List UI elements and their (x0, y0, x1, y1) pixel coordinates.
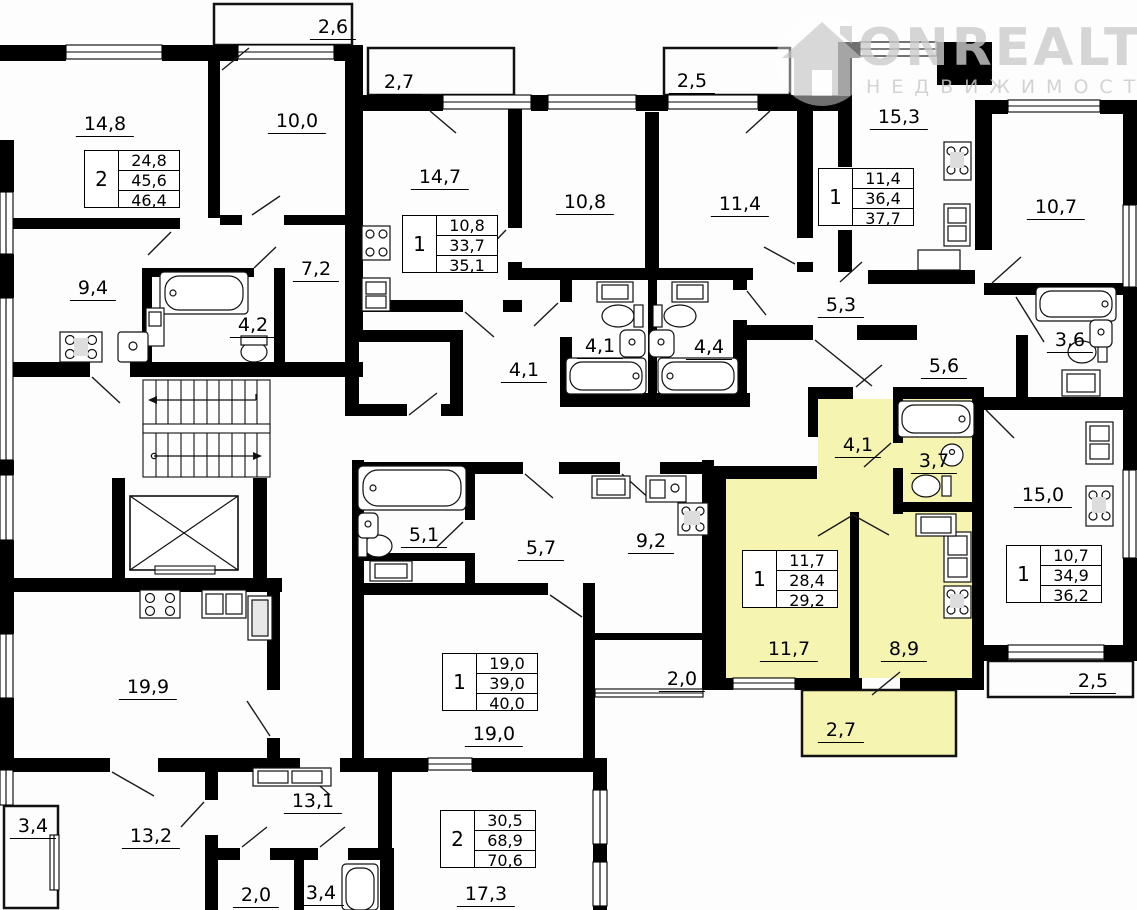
living-area: 19,0 (477, 654, 537, 673)
living-area: 24,8 (119, 151, 179, 170)
living-area: 10,7 (1041, 546, 1101, 565)
area-label-room-11-7: 11,7 (760, 639, 818, 662)
toilet-icon (241, 336, 267, 362)
cabinet-icon (918, 250, 960, 270)
area-label-balcony-2-5-top: 2,5 (669, 71, 715, 94)
apartment-rooms-count: 1 (819, 169, 853, 225)
total-area: 35,1 (437, 255, 497, 275)
wardrobe-icon (370, 561, 412, 581)
area-label-room-10-8: 10,8 (556, 192, 614, 215)
area-label-room-9-4: 9,4 (70, 278, 116, 301)
total-area: 46,4 (119, 190, 179, 210)
area-label-bath-3-7: 3,7 (911, 451, 957, 474)
area-label-balcony-2-7-top: 2,7 (376, 72, 422, 95)
area-label-loggia-2-0: 2,0 (659, 669, 705, 692)
living-area: 10,8 (437, 216, 497, 235)
stove-icon (678, 503, 708, 535)
area-label-room-15-3: 15,3 (870, 107, 928, 130)
area-label-kitchen-8-9: 8,9 (881, 639, 927, 662)
area-label-room-10-7: 10,7 (1027, 197, 1085, 220)
washing-machine-icon (916, 514, 956, 536)
area-label-loggia-3-4-left: 3,4 (10, 816, 56, 839)
stove-icon (362, 226, 390, 260)
area-label-hall-5-7: 5,7 (518, 538, 564, 561)
area-label-room-10-0: 10,0 (268, 111, 326, 134)
stove-icon (944, 142, 971, 180)
apartment-areas: 10,7 34,9 36,2 (1041, 546, 1101, 602)
elevator (130, 496, 238, 574)
apartment-area: 36,4 (853, 188, 913, 208)
apartment-table-apt-1-room-topright: 1 11,4 36,4 37,7 (818, 168, 914, 226)
counter-icon (253, 768, 331, 786)
area-label-room-13-2: 13,2 (122, 826, 180, 849)
apartment-table-apt-1-room-topmid: 1 10,8 33,7 35,1 (402, 215, 498, 273)
bathtub-icon (1036, 287, 1116, 321)
washing-machine-icon (592, 476, 630, 498)
washing-machine-icon (1062, 370, 1100, 396)
apartment-area: 39,0 (477, 673, 537, 693)
area-label-hall-4-1-highlight: 4,1 (835, 435, 881, 458)
apartment-areas: 19,0 39,0 40,0 (477, 654, 537, 710)
cabinet-icon (248, 596, 272, 640)
toilet-icon (602, 305, 643, 327)
kitchen-sink-icon (944, 532, 971, 582)
area-label-hall-13-1: 13,1 (284, 791, 342, 814)
stove-icon (140, 590, 180, 618)
total-area: 70,6 (475, 850, 535, 870)
kitchen-sink-icon (362, 278, 390, 311)
floor-plan-drawing (0, 0, 1137, 910)
area-label-hall-7-2: 7,2 (293, 259, 339, 282)
living-area: 11,7 (777, 551, 837, 570)
area-label-hall-5-6: 5,6 (921, 356, 967, 379)
kitchen-sink-icon (944, 204, 970, 246)
apartment-rooms-count: 1 (743, 551, 777, 607)
area-label-room-17-3: 17,3 (457, 884, 515, 907)
apartment-area: 45,6 (119, 170, 179, 190)
area-label-hall-4-1-mid: 4,1 (501, 360, 547, 383)
bathtub-icon (160, 272, 248, 314)
bathtub-icon (358, 466, 466, 510)
apartment-rooms-count: 1 (1007, 546, 1041, 602)
total-area: 29,2 (777, 590, 837, 610)
apartment-area: 33,7 (437, 235, 497, 255)
apartment-rooms-count: 2 (441, 811, 475, 867)
area-label-bath-3-4: 3,4 (298, 883, 344, 906)
toilet-icon (912, 475, 951, 497)
area-label-balcony-2-5-right: 2,5 (1070, 671, 1116, 694)
apartment-rooms-count: 2 (85, 151, 119, 207)
apartment-areas: 10,8 33,7 35,1 (437, 216, 497, 272)
toilet-icon (653, 305, 696, 327)
area-label-room-14-8: 14,8 (76, 114, 134, 137)
apartment-table-apt-1-room-studio: 1 19,0 39,0 40,0 (442, 653, 538, 711)
apartment-table-apt-2-room-bottom: 2 30,5 68,9 70,6 (440, 810, 536, 868)
apartment-areas: 11,7 28,4 29,2 (777, 551, 837, 607)
area-label-wc-2-0: 2,0 (233, 885, 279, 908)
stove-icon (1086, 486, 1113, 526)
total-area: 40,0 (477, 693, 537, 713)
apartment-areas: 24,8 45,6 46,4 (119, 151, 179, 207)
bathtub-icon (342, 864, 378, 910)
apartment-table-apt-2-room-topleft: 2 24,8 45,6 46,4 (84, 150, 180, 208)
apartment-rooms-count: 1 (443, 654, 477, 710)
apartment-table-apt-1-room-highlight: 1 11,7 28,4 29,2 (742, 550, 838, 608)
sink-icon (620, 330, 645, 357)
area-label-kitchen-9-2: 9,2 (628, 531, 674, 554)
area-label-room-15-0: 15,0 (1014, 485, 1072, 508)
area-label-room-11-4: 11,4 (711, 194, 769, 217)
stairs (143, 380, 270, 477)
area-label-balcony-2-6: 2,6 (310, 17, 356, 40)
sink-icon (118, 332, 148, 362)
bathtub-icon (898, 401, 974, 437)
apartment-area: 28,4 (777, 570, 837, 590)
apartment-rooms-count: 1 (403, 216, 437, 272)
kitchen-sink-icon (1086, 422, 1113, 464)
bathtub-icon (658, 358, 738, 394)
area-label-balcony-2-7-highlight: 2,7 (818, 720, 864, 743)
living-area: 30,5 (475, 811, 535, 830)
area-label-hall-5-3: 5,3 (818, 295, 864, 318)
stove-icon (944, 586, 971, 618)
area-label-bath-5-1: 5,1 (401, 525, 447, 548)
apartment-area: 34,9 (1041, 565, 1101, 585)
apartment-areas: 11,4 36,4 37,7 (853, 169, 913, 225)
sink-icon (146, 308, 164, 346)
sink-icon (1090, 320, 1112, 347)
total-area: 36,2 (1041, 585, 1101, 605)
apartment-areas: 30,5 68,9 70,6 (475, 811, 535, 867)
area-label-room-19-0: 19,0 (465, 724, 523, 747)
area-label-bath-3-6: 3,6 (1047, 330, 1093, 353)
area-label-room-19-9: 19,9 (119, 677, 177, 700)
floor-plan: 2,62,72,514,810,014,710,811,415,310,79,4… (0, 0, 1137, 910)
area-label-room-14-7: 14,7 (411, 167, 469, 190)
sink-icon (649, 330, 674, 357)
washing-machine-icon (672, 282, 708, 302)
apartment-table-apt-1-room-right: 1 10,7 34,9 36,2 (1006, 545, 1102, 603)
sink-icon (358, 513, 378, 538)
living-area: 11,4 (853, 169, 913, 188)
washing-machine-icon (597, 282, 633, 302)
area-label-bath-4-2: 4,2 (230, 315, 276, 338)
bathtub-icon (566, 358, 646, 394)
total-area: 37,7 (853, 208, 913, 228)
kitchen-sink-icon (646, 476, 686, 502)
kitchen-sink-icon (202, 590, 246, 618)
area-label-bath-4-1: 4,1 (577, 336, 623, 359)
area-label-bath-4-4: 4,4 (686, 337, 732, 360)
apartment-area: 68,9 (475, 830, 535, 850)
stove-icon (60, 332, 102, 362)
